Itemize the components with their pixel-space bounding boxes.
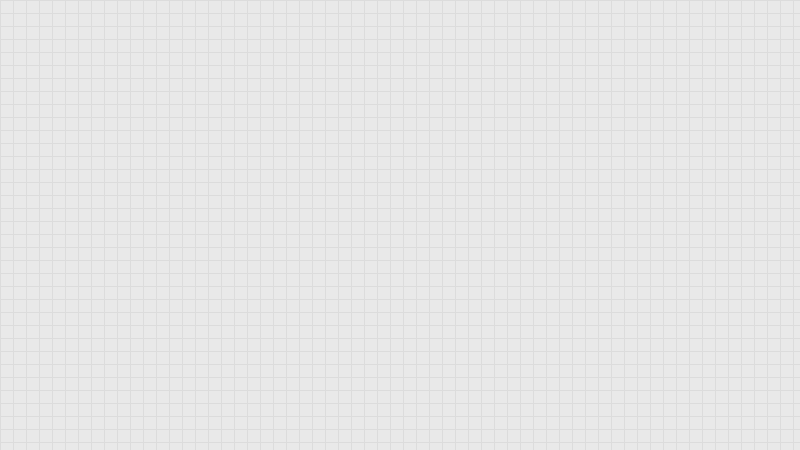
floorplan-canvas[interactable] [0, 0, 800, 450]
